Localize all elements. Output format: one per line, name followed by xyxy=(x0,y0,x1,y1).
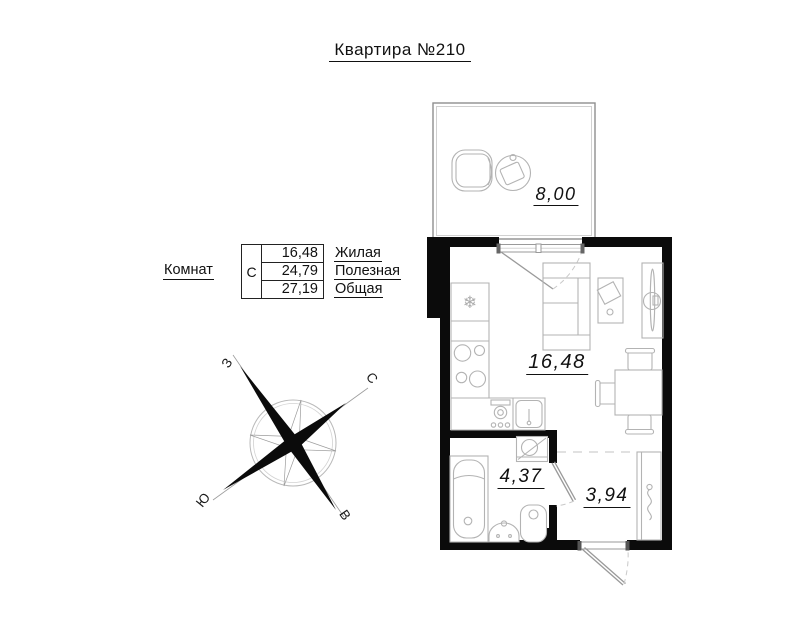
total-area-type: Общая xyxy=(334,281,401,299)
balcony-armchair xyxy=(452,150,492,191)
floor-plan-drawing: ❄ xyxy=(0,0,800,643)
apartment-type-code: С xyxy=(242,245,262,298)
balcony-door-leaf xyxy=(501,252,553,289)
kitchen-sink xyxy=(516,401,542,428)
balcony-round-table xyxy=(496,155,531,191)
entry-door xyxy=(578,541,630,585)
living-area-type: Жилая xyxy=(334,245,401,263)
side-table xyxy=(597,278,623,323)
floor-plan-page: ❄ xyxy=(0,0,800,643)
snowflake-icon: ❄ xyxy=(463,293,477,313)
bathtub xyxy=(450,456,488,542)
bathroom-door-swing xyxy=(556,501,574,506)
balcony xyxy=(433,103,595,239)
bathroom-area-label: 4,37 xyxy=(498,466,545,488)
cooktop-unit xyxy=(491,398,513,430)
tv-unit xyxy=(642,263,663,338)
living-area-value: 16,48 xyxy=(262,245,323,263)
compass-star xyxy=(223,366,346,510)
wall-top-right xyxy=(582,237,672,247)
wall-bathroom-right-upper xyxy=(549,430,557,463)
area-values: 16,48 24,79 27,19 xyxy=(262,245,323,298)
dining-chair-left xyxy=(599,383,617,404)
hallway-area-label: 3,94 xyxy=(584,485,631,507)
entry-door-leaf xyxy=(582,548,626,586)
sofa xyxy=(543,263,590,350)
dining-chair-bottom xyxy=(628,415,651,431)
entry-door-swing xyxy=(624,551,628,584)
stove-burners xyxy=(454,345,485,387)
compass xyxy=(213,355,368,517)
living-area-label: 16,48 xyxy=(526,351,588,374)
area-type-labels: Жилая Полезная Общая xyxy=(334,245,401,300)
area-table: С 16,48 24,79 27,19 xyxy=(241,244,324,299)
balcony-wall-outer xyxy=(433,103,595,239)
balcony-door-swing xyxy=(553,254,581,289)
bathroom-door xyxy=(552,462,576,506)
balcony-wall-inner xyxy=(437,107,592,236)
bathroom-door-leaf xyxy=(552,462,576,501)
bathroom-fixtures xyxy=(450,437,548,543)
total-area-value: 27,19 xyxy=(262,281,323,298)
toilet xyxy=(521,505,547,542)
balcony-door xyxy=(497,244,585,290)
usable-area-type: Полезная xyxy=(334,263,401,281)
wall-left xyxy=(440,237,450,550)
bathroom-sink xyxy=(489,521,519,542)
page-title: Квартира №210 xyxy=(0,40,800,60)
dining-table xyxy=(615,370,662,415)
dining-set xyxy=(596,349,663,435)
usable-area-value: 24,79 xyxy=(262,263,323,281)
balcony-area-label: 8,00 xyxy=(533,184,578,205)
washing-machine xyxy=(517,437,548,462)
wall-bottom-right xyxy=(627,540,672,550)
hallway-wardrobe xyxy=(637,452,661,540)
dining-chair-top xyxy=(628,352,652,370)
rooms-count-label: Комнат xyxy=(163,262,214,278)
